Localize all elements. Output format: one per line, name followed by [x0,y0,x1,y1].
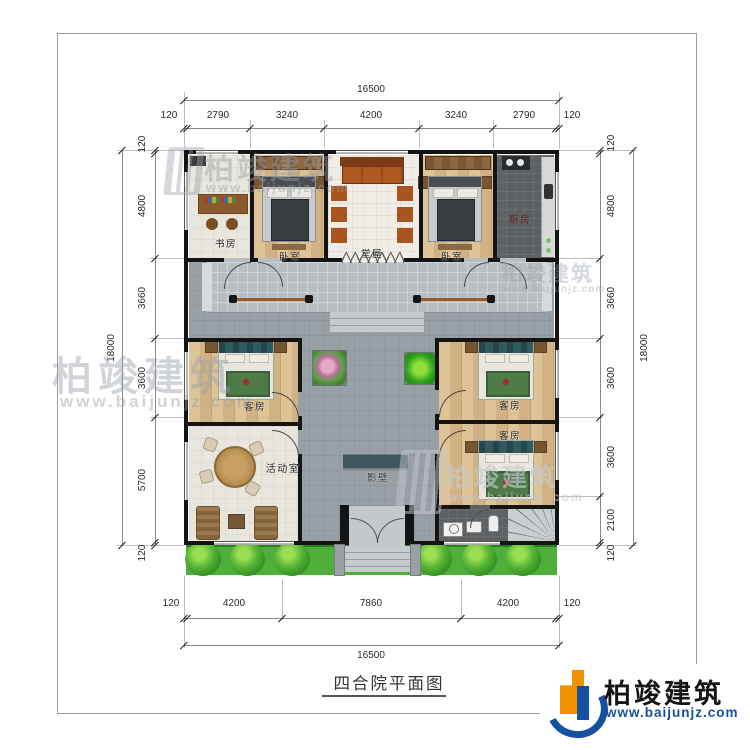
gate-step-post [334,544,345,576]
dim-right-total: 18000 [639,318,651,378]
porch-column [487,295,495,303]
dim-label: 4200 [346,110,396,122]
window [184,442,188,500]
dim-label: 120 [606,120,618,166]
extension-line [559,338,603,339]
watermark-url: www.baijunjz.com [448,490,584,504]
nightstand [465,341,478,353]
bed-pillow [485,354,505,363]
bed-pillow [433,188,454,198]
floorplan-page: 16500 120 2790 3240 4200 3240 2790 120 1… [0,0,750,750]
nightstand [481,176,492,189]
corner-stairs [508,509,555,541]
kitchen-sink [544,184,553,199]
bed [428,176,482,242]
dim-label: 3660 [606,275,618,321]
dim-top-total: 16500 [336,84,406,96]
bush [274,542,310,576]
wall-leftwing-divider [184,422,302,426]
room-label-hall: 堂屋 [352,246,392,260]
nightstand [274,341,287,353]
porch-railing [419,298,489,301]
wall-rightwing-divider [435,420,559,424]
bed-rug-dot [503,379,509,385]
room-label-guest-right-bottom: 客房 [490,428,530,442]
stove-burner [517,159,524,166]
company-logo: 柏竣建筑 www.baijunjz.com [540,664,745,740]
lounger [196,506,220,540]
dim-label: 3660 [137,275,149,321]
watermark-logo-icon [163,147,204,195]
logo-building-blue [577,686,593,720]
bed-pillow [457,188,478,198]
gate-step-post [410,544,421,576]
extension-line [559,417,603,418]
wall-leftwing-top [184,338,302,342]
door-gap [298,430,302,454]
chair [226,218,238,230]
chair [206,218,218,230]
room-label-screen-wall: 影壁 [358,470,398,484]
dim-label: 120 [137,530,149,576]
bed-quilt [271,199,309,241]
extension-line [461,580,462,620]
kitchen-plant [546,238,551,243]
hall-chairs-right [397,186,413,244]
dim-line-top-total [184,100,560,101]
dim-label: 3600 [606,355,618,401]
dim-label: 5700 [137,457,149,503]
bush [416,542,452,576]
toilet [488,515,499,532]
screen-wall [343,454,408,468]
room-label-guest-right-top: 客房 [490,398,530,412]
dim-label: 4800 [137,183,149,229]
porch-railing [236,298,306,301]
bed-rug-dot [243,379,249,385]
dim-label: 120 [146,110,192,122]
dim-label: 2790 [499,110,549,122]
bed-headboard [479,441,533,453]
dim-label: 7860 [348,598,394,610]
dim-label: 120 [148,598,194,610]
wall [493,153,497,260]
dim-label: 3600 [606,434,618,480]
gate-steps [342,546,412,572]
extension-line [419,120,420,148]
watermark-url: www.baijunjz.com [206,180,350,195]
wardrobe [425,156,491,170]
nightstand [534,441,547,453]
porch-steps [330,312,424,333]
dim-bottom-total: 16500 [336,650,406,662]
window [555,172,559,230]
nightstand [534,341,547,353]
bed [478,340,534,400]
extension-line [184,576,185,648]
porch-column [413,295,421,303]
page-title: 四合院平面图 [333,670,445,694]
title-underline [322,695,446,697]
gate-post-left [340,505,349,545]
dim-label: 4800 [606,183,618,229]
wall [419,153,423,260]
window [214,541,294,545]
dim-label: 120 [549,598,595,610]
kitchen-plant [546,248,551,253]
bed-pillow [249,354,269,363]
dim-line-right-total [633,150,634,546]
bush [185,542,221,576]
sofa-cushions [342,166,404,184]
sofa-back [340,157,404,166]
dim-line-right-segments [600,150,601,546]
bed-pillow [509,354,529,363]
dim-label: 3240 [431,110,481,122]
extension-line [282,580,283,620]
bed-headboard [479,341,533,353]
door-gap [298,392,302,416]
planter-plant [404,352,436,385]
dim-label: 120 [606,530,618,576]
bush [505,542,541,576]
side-table [228,514,245,529]
room-label-kitchen: 厨房 [500,212,540,226]
planter-flowers [312,350,347,386]
dim-label: 3240 [262,110,312,122]
porch-column [305,295,313,303]
washer-door [449,524,459,534]
window [555,350,559,398]
room-label-bedroom-left: 卧室 [270,249,310,263]
wall-rightwing-top [435,338,559,342]
bush [461,542,497,576]
porch-side-step [202,263,212,311]
logo-url-text: www.baijunjz.com [606,705,739,720]
porch-column [229,295,237,303]
bush [229,542,265,576]
window [444,541,500,545]
extension-line [559,576,560,648]
watermark-logo-icon [395,450,448,514]
dim-label: 4200 [485,598,531,610]
wall-bath-divider [435,505,559,509]
dim-label: 2790 [193,110,243,122]
desk-books [204,197,238,203]
bed-quilt [437,199,475,241]
nightstand [465,441,478,453]
window [336,150,408,154]
stove-burner [506,159,513,166]
dim-label: 120 [137,121,149,167]
room-label-study: 书房 [206,236,246,250]
dim-line-top-segments [184,128,560,129]
room-label-activity: 活动室 [255,460,311,475]
door-gap [435,390,439,414]
bed-headboard [429,177,481,187]
watermark-url: www.baijunjz.com [503,284,605,295]
dim-label: 120 [549,110,595,122]
watermark-brand: 柏竣建筑 [446,458,558,494]
dim-line-bottom-segments [184,618,560,619]
room-label-bedroom-right: 卧室 [432,249,472,263]
dim-label: 4200 [211,598,257,610]
extension-line [493,120,494,148]
watermark-url: www.baijunjz.com [60,392,255,412]
dim-line-bottom-total [184,645,560,646]
lounger [254,506,278,540]
